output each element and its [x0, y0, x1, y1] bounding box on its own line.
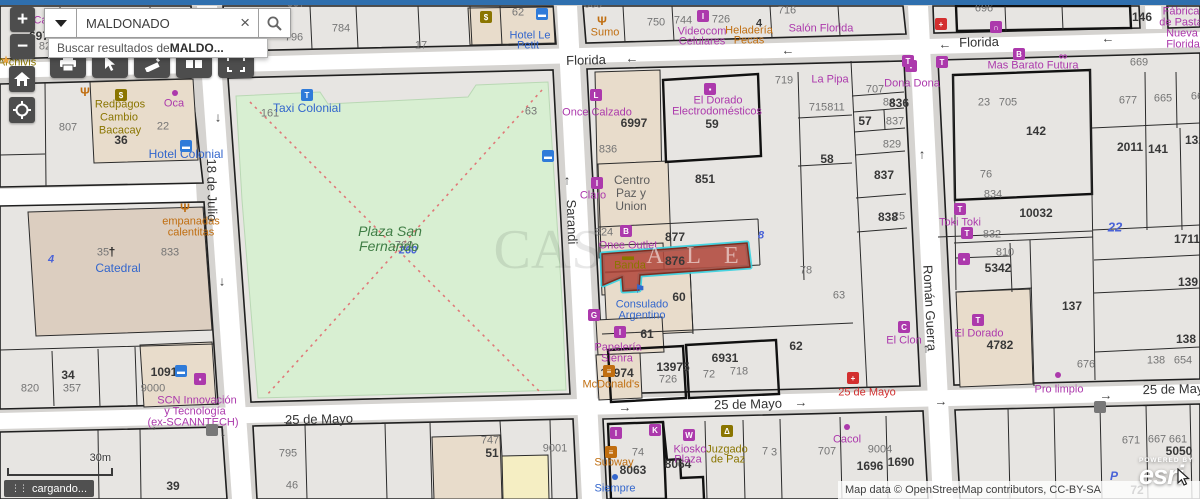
loading-indicator: ⋮⋮ cargando... — [4, 480, 94, 497]
spinner-icon: ⋮⋮ — [11, 483, 27, 494]
search-suggestion[interactable]: Buscar resultados de MALDO... — [48, 38, 268, 58]
loading-text: cargando... — [32, 483, 87, 495]
home-icon — [14, 72, 30, 86]
suggestion-prefix: Buscar resultados de — [57, 41, 170, 55]
locate-button[interactable] — [9, 97, 35, 123]
search-source-dropdown[interactable] — [44, 8, 77, 38]
layers-icon — [185, 58, 203, 70]
search-button[interactable] — [258, 8, 291, 38]
search-input[interactable]: MALDONADO × — [77, 8, 258, 38]
printer-icon — [59, 56, 77, 72]
zoom-in-label: + — [17, 9, 28, 31]
scale-bar-label: 30m — [90, 452, 111, 464]
zoom-in-button[interactable]: + — [10, 7, 35, 32]
crosshair-target-icon — [13, 101, 31, 119]
search-icon — [266, 15, 283, 32]
chevron-down-icon — [55, 20, 67, 27]
clear-search-icon[interactable]: × — [236, 13, 254, 33]
map-application: FloridaFlorida25 de Mayo25 de Mayo25 de … — [0, 0, 1200, 499]
top-blue-strip — [0, 0, 1200, 5]
mouse-cursor — [1177, 468, 1191, 486]
search-value: MALDONADO — [86, 16, 236, 31]
suggestion-term: MALDO... — [170, 41, 224, 55]
extent-icon — [227, 56, 245, 72]
zoom-out-label: − — [17, 36, 28, 58]
street-top-right — [1145, 6, 1162, 29]
plaza-san-fernando — [236, 82, 566, 398]
home-button[interactable] — [9, 66, 35, 92]
search-widget: MALDONADO × — [44, 8, 291, 38]
zoom-out-button[interactable]: − — [10, 34, 35, 59]
pencil-icon — [143, 56, 161, 72]
scale-bar-line — [7, 468, 113, 476]
pointer-icon — [103, 56, 117, 72]
attribution-text: Map data © OpenStreetMap contributors, C… — [845, 484, 1101, 496]
